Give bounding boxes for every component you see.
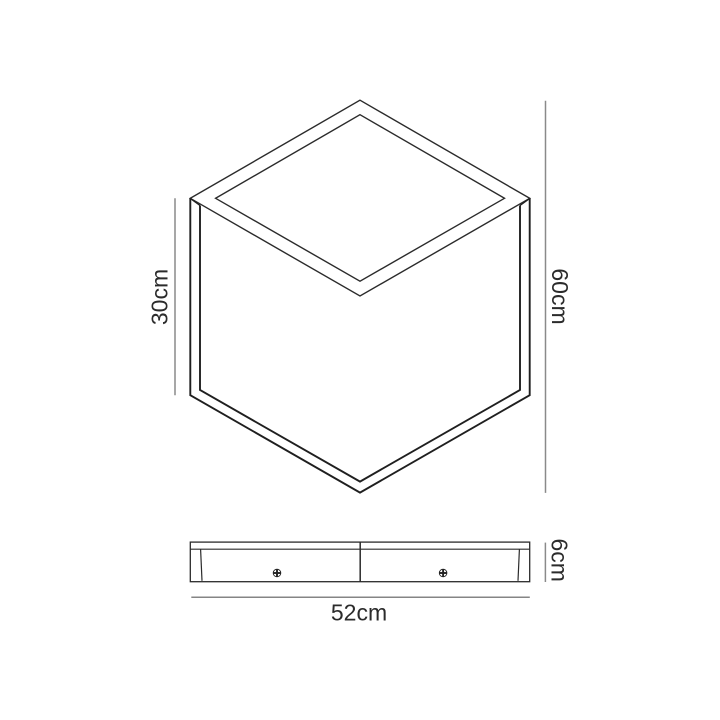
svg-text:6cm: 6cm (547, 538, 573, 581)
svg-text:30cm: 30cm (146, 269, 172, 325)
svg-text:60cm: 60cm (547, 268, 573, 324)
svg-text:52cm: 52cm (331, 600, 387, 626)
